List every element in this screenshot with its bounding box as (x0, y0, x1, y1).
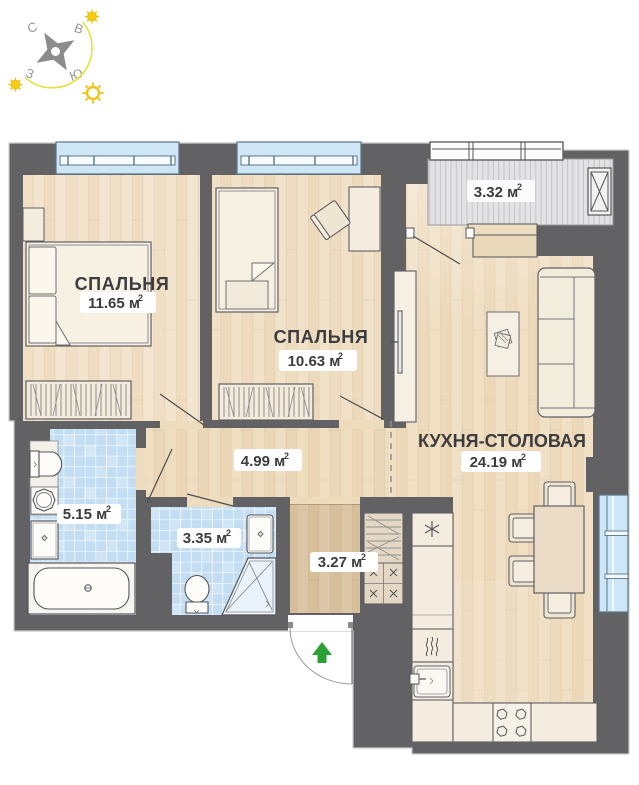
svg-text:24.19 м: 24.19 м (470, 454, 523, 471)
svg-text:2: 2 (106, 504, 111, 514)
svg-text:2: 2 (517, 182, 522, 192)
svg-text:2: 2 (226, 528, 231, 538)
svg-text:2: 2 (521, 452, 526, 462)
svg-text:СПАЛЬНЯ: СПАЛЬНЯ (75, 274, 170, 294)
svg-text:3.35 м: 3.35 м (183, 530, 227, 547)
svg-text:КУХНЯ-СТОЛОВАЯ: КУХНЯ-СТОЛОВАЯ (418, 431, 586, 451)
svg-text:2: 2 (338, 351, 343, 361)
svg-text:3.27 м: 3.27 м (318, 554, 362, 571)
svg-text:3.32 м: 3.32 м (474, 184, 518, 201)
svg-text:2: 2 (361, 552, 366, 562)
svg-text:2: 2 (138, 293, 143, 303)
svg-text:СПАЛЬНЯ: СПАЛЬНЯ (274, 327, 369, 347)
svg-text:11.65 м: 11.65 м (88, 295, 140, 312)
svg-text:4.99 м: 4.99 м (241, 453, 285, 470)
svg-text:10.63 м: 10.63 м (288, 353, 341, 370)
svg-text:2: 2 (284, 451, 289, 461)
svg-text:5.15 м: 5.15 м (63, 506, 107, 523)
